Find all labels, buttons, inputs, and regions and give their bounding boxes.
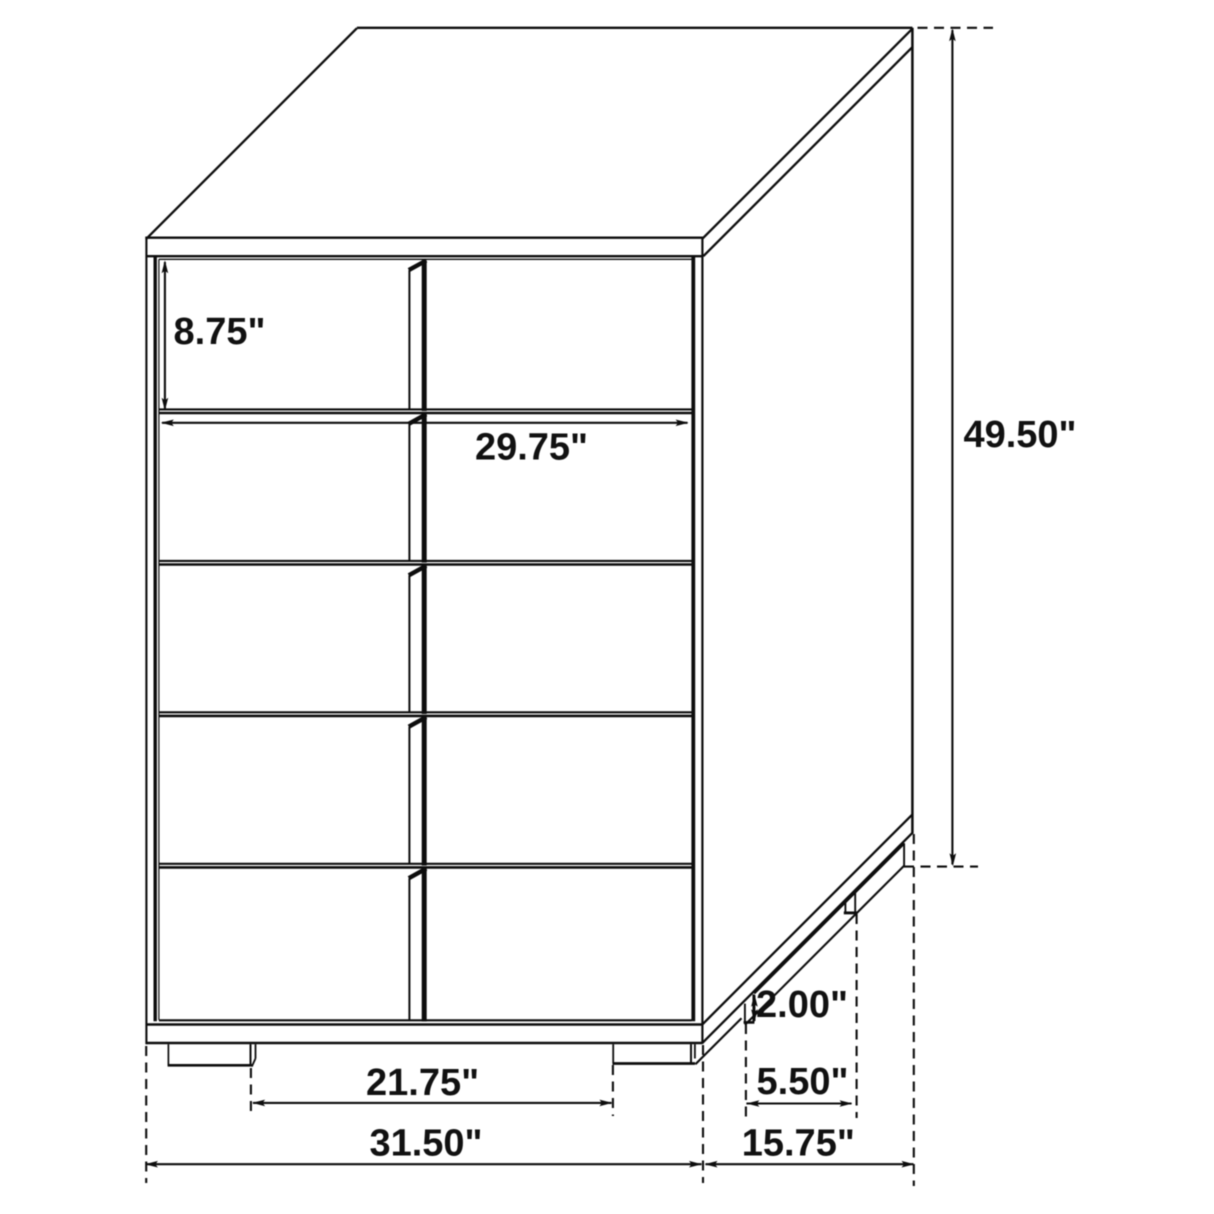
svg-text:49.50": 49.50": [963, 414, 1076, 456]
svg-text:15.75": 15.75": [742, 1123, 855, 1165]
svg-text:2.00": 2.00": [756, 984, 848, 1026]
svg-text:29.75": 29.75": [475, 426, 588, 468]
svg-text:8.75": 8.75": [174, 311, 266, 353]
svg-text:31.50": 31.50": [369, 1123, 482, 1165]
svg-text:21.75": 21.75": [366, 1062, 479, 1104]
svg-text:5.50": 5.50": [757, 1061, 849, 1103]
